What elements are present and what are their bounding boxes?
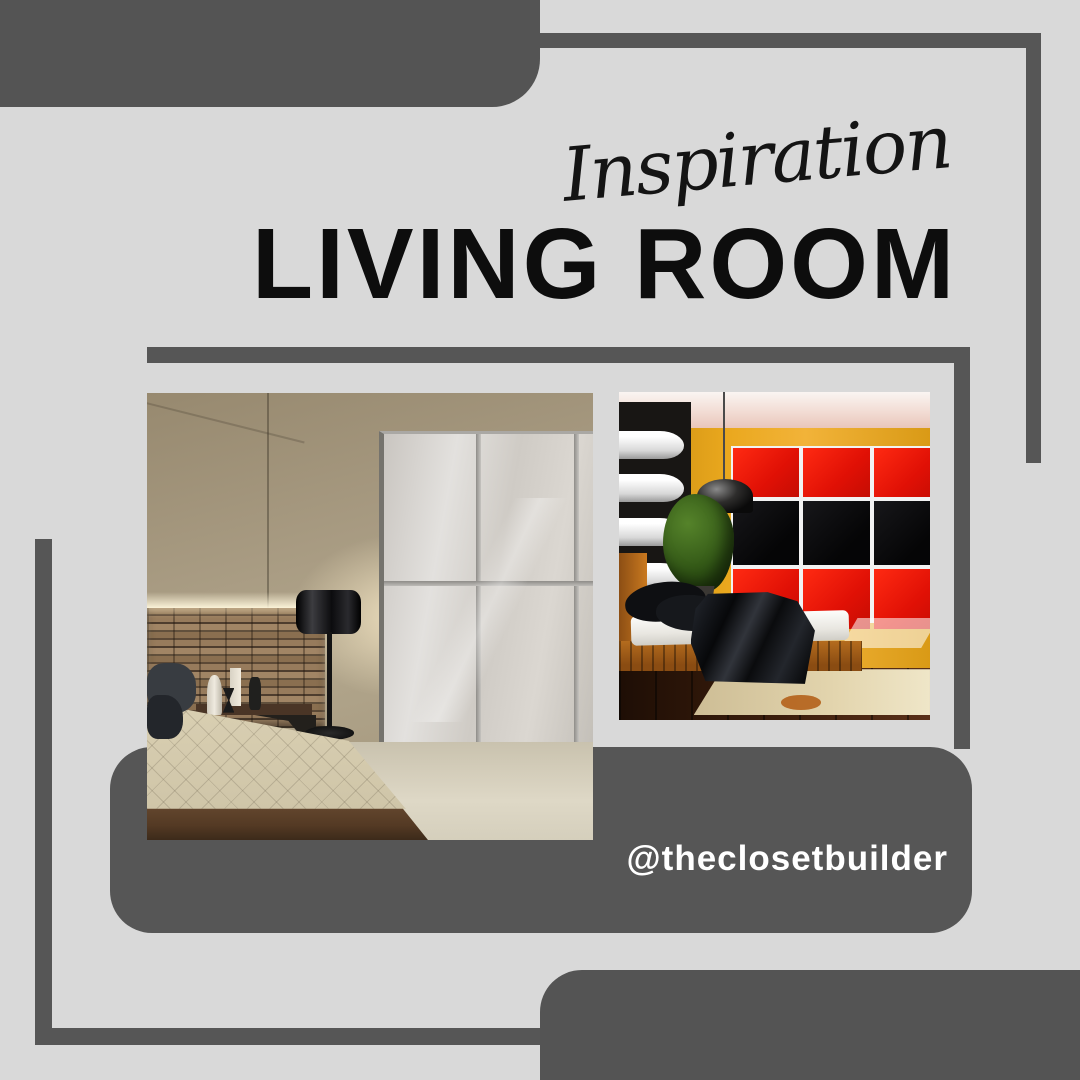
photo-bedroom-red-closet (619, 392, 930, 720)
glass-sheen (405, 498, 572, 722)
closet-door-rail (574, 434, 579, 754)
photo-frame-horizontal-bar (147, 347, 970, 363)
white-curved-shelf (619, 431, 684, 459)
closet-cell-red (803, 448, 869, 496)
white-curved-shelf (619, 474, 684, 502)
instagram-handle: @theclosetbuilder (627, 839, 948, 879)
page-title: LIVING ROOM (252, 214, 957, 314)
pendant-lamp-cord (723, 392, 725, 481)
top-right-frame-vertical-bar (1026, 33, 1041, 463)
candle (230, 668, 242, 706)
closet-cell-black (803, 501, 869, 565)
black-vase (249, 677, 261, 711)
closet-cell-red (874, 448, 930, 496)
closet-cell-black (874, 501, 930, 565)
top-right-frame-horizontal-bar (540, 33, 1041, 48)
poster-canvas: @theclosetbuilder Inspiration LIVING ROO… (0, 0, 1080, 1080)
floor-lamp-stem (327, 632, 332, 733)
dark-pillow (147, 695, 183, 740)
white-vase (207, 675, 222, 715)
bottom-left-frame-vertical-bar (35, 539, 52, 1045)
black-blanket (691, 592, 815, 684)
top-left-corner-block (0, 0, 540, 107)
photo-frame-vertical-bar (954, 347, 970, 749)
bottom-right-corner-block (540, 970, 1080, 1080)
photo-bedroom-sliding-closet (147, 393, 593, 840)
script-title: Inspiration (560, 105, 954, 213)
bottom-left-frame-horizontal-bar (35, 1028, 540, 1045)
floor-lamp-shade (296, 590, 361, 635)
frosted-sliding-closet-doors (379, 431, 593, 754)
